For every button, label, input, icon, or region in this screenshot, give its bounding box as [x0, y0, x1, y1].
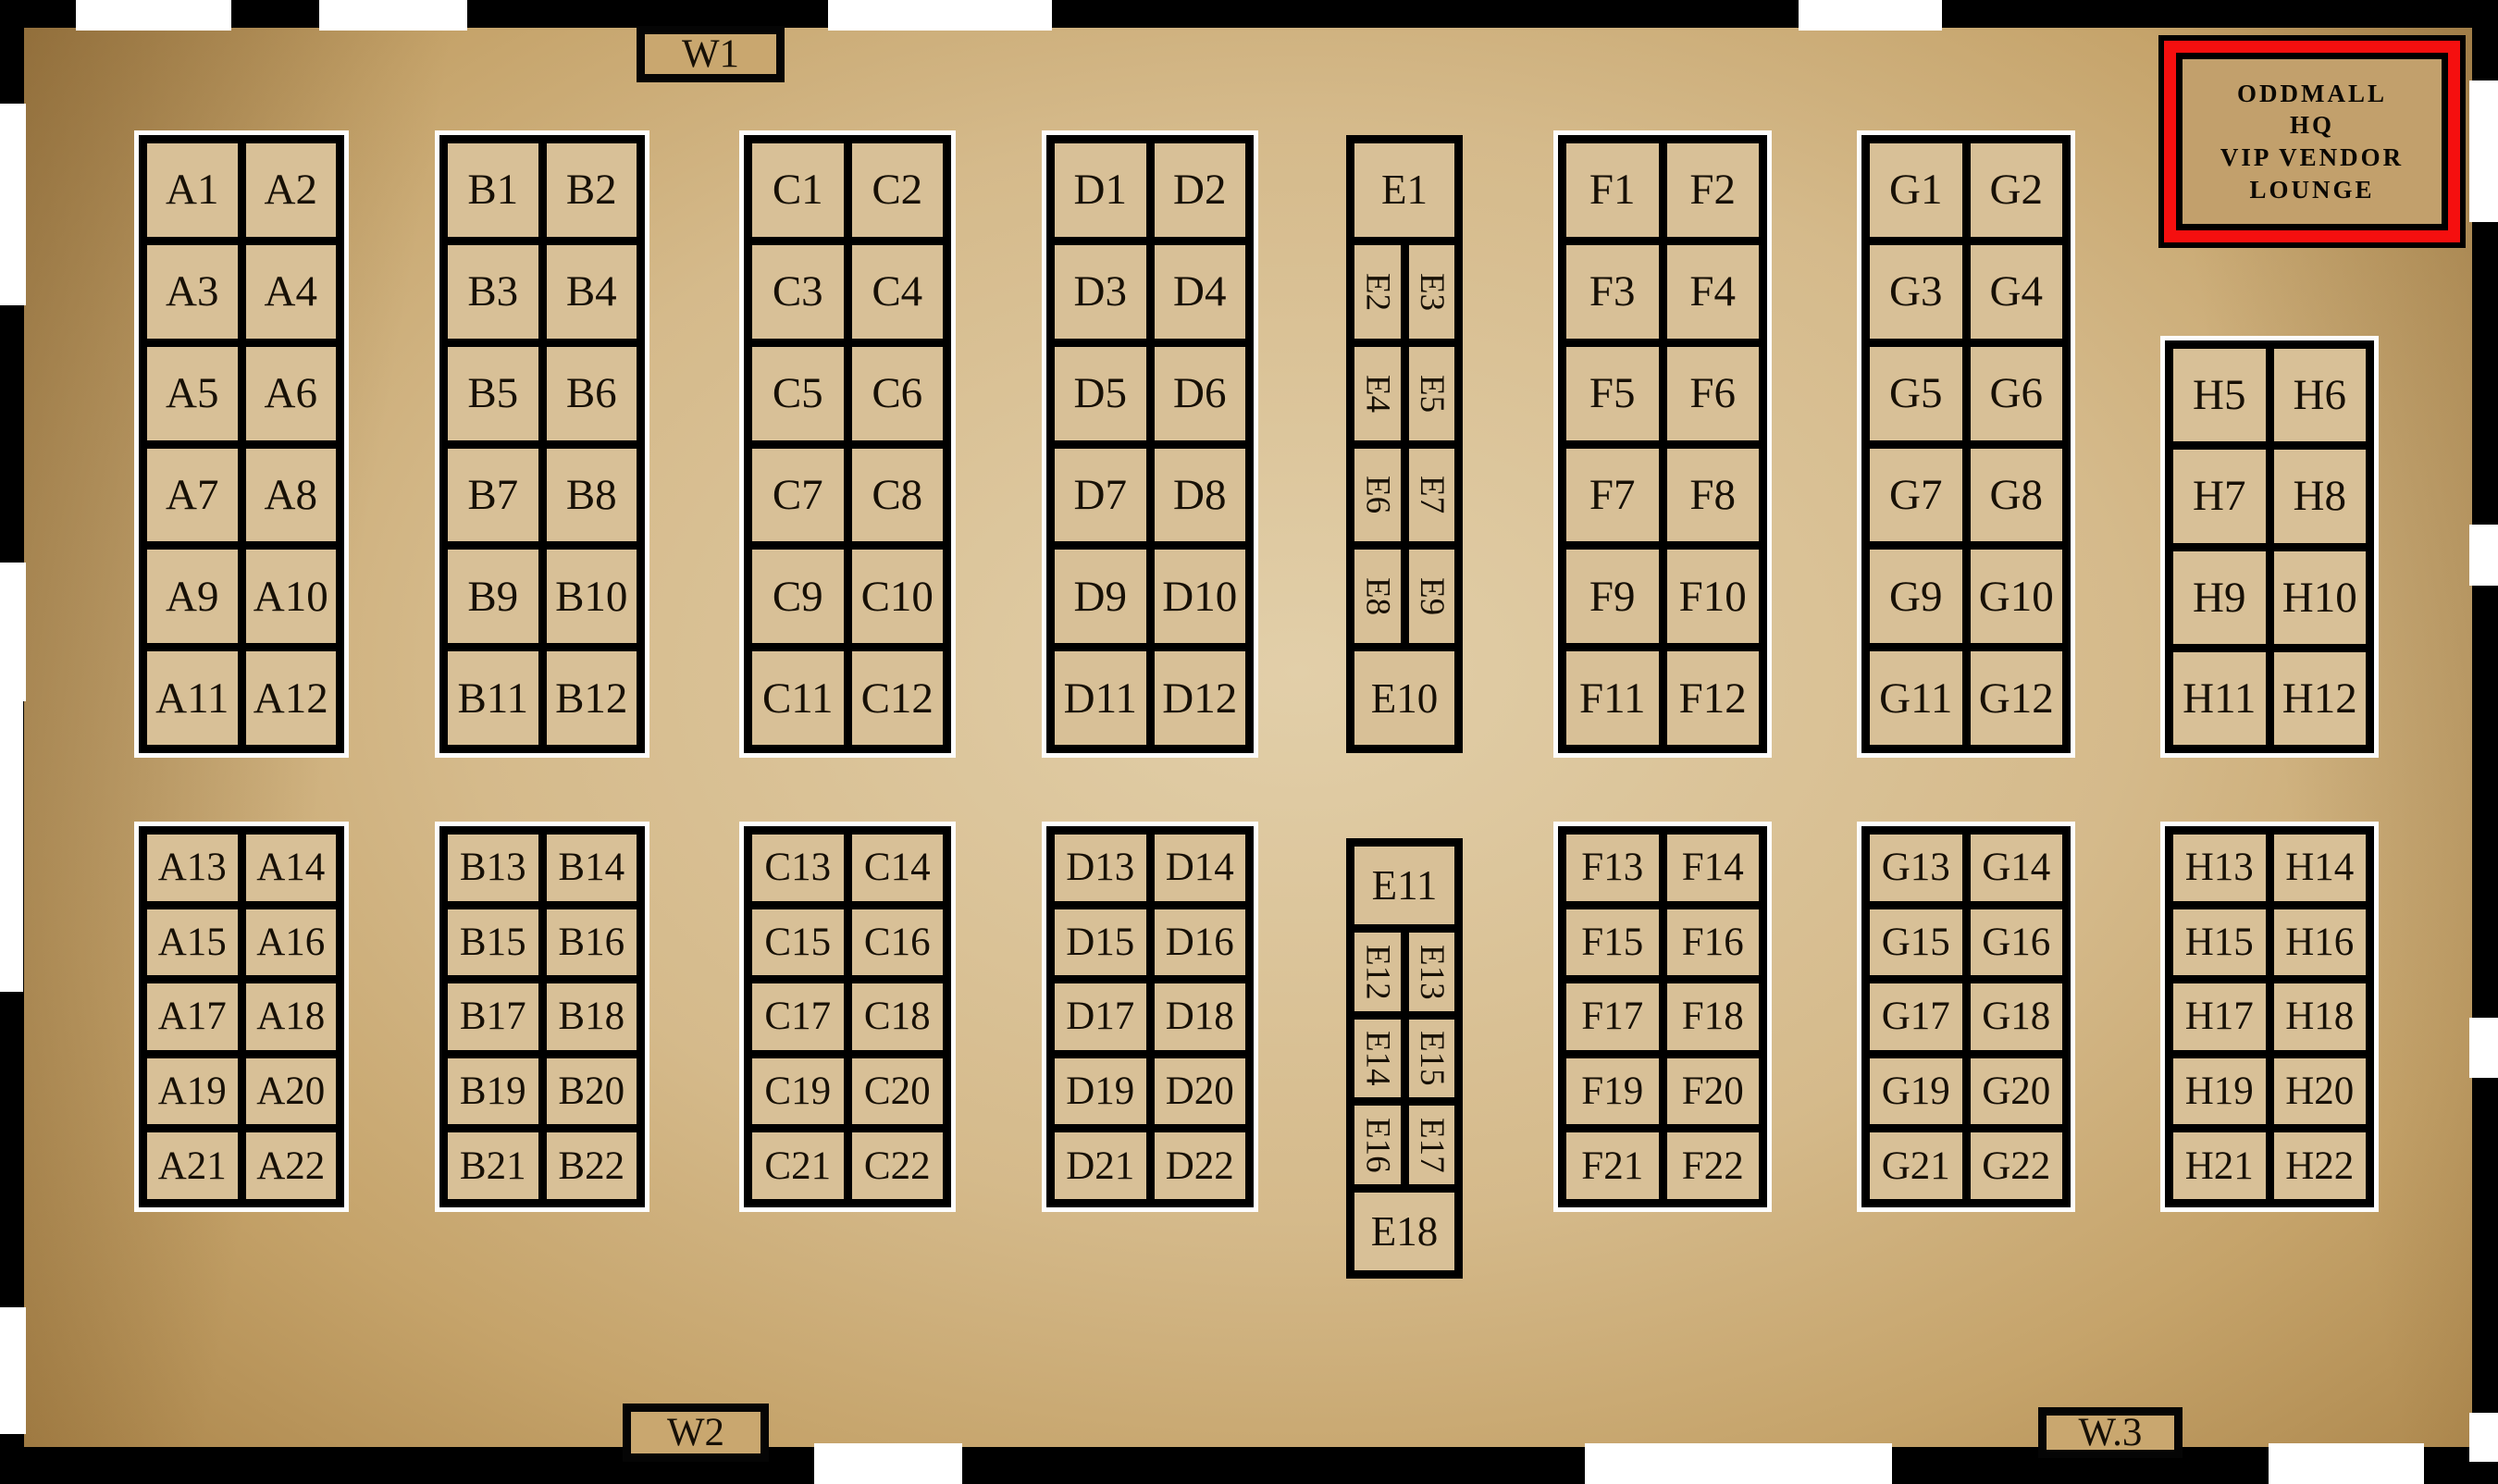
door-opening [0, 104, 26, 305]
booth-A17: A17 [147, 983, 238, 1050]
booth-E8: E8 [1354, 550, 1401, 643]
booth-A22: A22 [246, 1132, 337, 1199]
booth-H10: H10 [2274, 551, 2367, 644]
booth-D7: D7 [1055, 449, 1146, 542]
booth-H11: H11 [2173, 652, 2266, 745]
booth-G16: G16 [1971, 909, 2063, 976]
booth-G14: G14 [1971, 835, 2063, 901]
booth-C19: C19 [752, 1058, 844, 1125]
booth-C2: C2 [852, 143, 944, 237]
door-opening [76, 0, 231, 31]
booth-D13: D13 [1055, 835, 1146, 901]
door-opening [0, 1307, 26, 1434]
booth-D8: D8 [1155, 449, 1246, 542]
booth-B11: B11 [448, 651, 538, 745]
booth-B2: B2 [547, 143, 637, 237]
booth-E4: E4 [1354, 347, 1401, 440]
door-opening [2469, 525, 2498, 586]
wall-right [2472, 0, 2498, 1484]
booth-G20: G20 [1971, 1058, 2063, 1125]
booth-D14: D14 [1155, 835, 1246, 901]
booth-A8: A8 [246, 449, 337, 542]
booth-H13: H13 [2173, 835, 2266, 901]
booth-D18: D18 [1155, 983, 1246, 1050]
wall-marker-w1: W1 [637, 26, 785, 82]
booth-A5: A5 [147, 347, 238, 440]
booth-F9: F9 [1566, 550, 1659, 643]
booth-B6: B6 [547, 347, 637, 440]
booth-A4: A4 [246, 245, 337, 339]
booth-E14: E14 [1354, 1020, 1401, 1097]
booth-A7: A7 [147, 449, 238, 542]
booth-B19: B19 [448, 1058, 538, 1125]
booth-D6: D6 [1155, 347, 1246, 440]
booth-block-E-bottom: E11E12E13E14E15E16E17E18 [1346, 838, 1463, 1279]
booth-C5: C5 [752, 347, 844, 440]
booth-A16: A16 [246, 909, 337, 976]
booth-B16: B16 [547, 909, 637, 976]
booth-D10: D10 [1155, 550, 1246, 643]
booth-E9: E9 [1409, 550, 1455, 643]
booth-C16: C16 [852, 909, 944, 976]
vip-lounge-text-line: ODDMALL [2237, 78, 2387, 110]
booth-block-C-bottom: C13C14C15C16C17C18C19C20C21C22 [744, 826, 951, 1207]
booth-E6: E6 [1354, 449, 1401, 542]
booth-A19: A19 [147, 1058, 238, 1125]
booth-A1: A1 [147, 143, 238, 237]
booth-block-H-bottom: H13H14H15H16H17H18H19H20H21H22 [2165, 826, 2374, 1207]
booth-B17: B17 [448, 983, 538, 1050]
booth-A20: A20 [246, 1058, 337, 1125]
booth-B18: B18 [547, 983, 637, 1050]
booth-G8: G8 [1971, 449, 2063, 542]
booth-D15: D15 [1055, 909, 1146, 976]
booth-block-F-bottom: F13F14F15F16F17F18F19F20F21F22 [1558, 826, 1767, 1207]
booth-H20: H20 [2274, 1058, 2367, 1125]
booth-E11: E11 [1354, 847, 1454, 924]
booth-G1: G1 [1870, 143, 1962, 237]
booth-C22: C22 [852, 1132, 944, 1199]
booth-C7: C7 [752, 449, 844, 542]
booth-H5: H5 [2173, 349, 2266, 441]
booth-C10: C10 [852, 550, 944, 643]
booth-D5: D5 [1055, 347, 1146, 440]
booth-D22: D22 [1155, 1132, 1246, 1199]
booth-B7: B7 [448, 449, 538, 542]
door-opening [814, 1443, 962, 1484]
booth-G5: G5 [1870, 347, 1962, 440]
booth-H15: H15 [2173, 909, 2266, 976]
vip-lounge-text-line: LOUNGE [2249, 174, 2374, 206]
booth-D16: D16 [1155, 909, 1246, 976]
vip-vendor-lounge-inner: ODDMALL HQ VIP VENDOR LOUNGE [2176, 53, 2448, 230]
booth-A21: A21 [147, 1132, 238, 1199]
booth-B13: B13 [448, 835, 538, 901]
booth-block-H-top: H5H6H7H8H9H10H11H12 [2165, 340, 2374, 753]
booth-C9: C9 [752, 550, 844, 643]
booth-C1: C1 [752, 143, 844, 237]
booth-D12: D12 [1155, 651, 1246, 745]
booth-C18: C18 [852, 983, 944, 1050]
door-opening [0, 563, 26, 701]
booth-F14: F14 [1667, 835, 1760, 901]
booth-B20: B20 [547, 1058, 637, 1125]
vip-lounge-text-line: HQ [2290, 109, 2334, 142]
booth-F8: F8 [1667, 449, 1760, 542]
booth-E12: E12 [1354, 933, 1401, 1010]
booth-D11: D11 [1055, 651, 1146, 745]
booth-G18: G18 [1971, 983, 2063, 1050]
booth-E18: E18 [1354, 1193, 1454, 1270]
booth-block-C-top: C1C2C3C4C5C6C7C8C9C10C11C12 [744, 135, 951, 753]
booth-H9: H9 [2173, 551, 2266, 644]
booth-C4: C4 [852, 245, 944, 339]
booth-F21: F21 [1566, 1132, 1659, 1199]
wall-marker-w3: W.3 [2038, 1407, 2183, 1458]
booth-block-B-bottom: B13B14B15B16B17B18B19B20B21B22 [439, 826, 645, 1207]
wall-marker-label: W1 [682, 31, 739, 77]
booth-H7: H7 [2173, 450, 2266, 542]
booth-A2: A2 [246, 143, 337, 237]
booth-F5: F5 [1566, 347, 1659, 440]
booth-B1: B1 [448, 143, 538, 237]
booth-F4: F4 [1667, 245, 1760, 339]
booth-block-G-top: G1G2G3G4G5G6G7G8G9G10G11G12 [1861, 135, 2071, 753]
booth-block-G-bottom: G13G14G15G16G17G18G19G20G21G22 [1861, 826, 2071, 1207]
door-opening [828, 0, 1052, 31]
booth-G4: G4 [1971, 245, 2063, 339]
booth-block-D-bottom: D13D14D15D16D17D18D19D20D21D22 [1046, 826, 1254, 1207]
booth-E7: E7 [1409, 449, 1455, 542]
booth-E16: E16 [1354, 1106, 1401, 1183]
booth-G17: G17 [1870, 983, 1962, 1050]
booth-block-D-top: D1D2D3D4D5D6D7D8D9D10D11D12 [1046, 135, 1254, 753]
door-opening [2469, 1413, 2498, 1462]
vendor-floor-map: A1A2A3A4A5A6A7A8A9A10A11A12B1B2B3B4B5B6B… [0, 0, 2498, 1484]
vip-lounge-text-line: VIP VENDOR [2220, 142, 2404, 174]
booth-H12: H12 [2274, 652, 2367, 745]
wall-marker-w2: W2 [623, 1404, 769, 1462]
booth-A10: A10 [246, 550, 337, 643]
door-opening [2469, 80, 2498, 222]
booth-block-E-top: E1E2E3E4E5E6E7E8E9E10 [1346, 135, 1463, 753]
booth-B21: B21 [448, 1132, 538, 1199]
booth-F15: F15 [1566, 909, 1659, 976]
wall-marker-label: W2 [667, 1410, 724, 1455]
booth-A3: A3 [147, 245, 238, 339]
booth-block-A-bottom: A13A14A15A16A17A18A19A20A21A22 [139, 826, 344, 1207]
booth-A6: A6 [246, 347, 337, 440]
booth-D1: D1 [1055, 143, 1146, 237]
booth-block-A-top: A1A2A3A4A5A6A7A8A9A10A11A12 [139, 135, 344, 753]
booth-D3: D3 [1055, 245, 1146, 339]
booth-C6: C6 [852, 347, 944, 440]
booth-F1: F1 [1566, 143, 1659, 237]
booth-H19: H19 [2173, 1058, 2266, 1125]
booth-E17: E17 [1409, 1106, 1455, 1183]
vip-vendor-lounge-box: ODDMALL HQ VIP VENDOR LOUNGE [2158, 35, 2466, 248]
booth-D17: D17 [1055, 983, 1146, 1050]
door-opening [2269, 1443, 2424, 1484]
booth-A11: A11 [147, 651, 238, 745]
booth-G19: G19 [1870, 1058, 1962, 1125]
door-opening [319, 0, 467, 31]
booth-C14: C14 [852, 835, 944, 901]
booth-G7: G7 [1870, 449, 1962, 542]
booth-A12: A12 [246, 651, 337, 745]
booth-D9: D9 [1055, 550, 1146, 643]
booth-F20: F20 [1667, 1058, 1760, 1125]
booth-F22: F22 [1667, 1132, 1760, 1199]
booth-block-F-top: F1F2F3F4F5F6F7F8F9F10F11F12 [1558, 135, 1767, 753]
booth-H21: H21 [2173, 1132, 2266, 1199]
booth-block-B-top: B1B2B3B4B5B6B7B8B9B10B11B12 [439, 135, 645, 753]
door-opening [2469, 1018, 2498, 1078]
door-opening [0, 701, 23, 992]
booth-E10: E10 [1354, 651, 1454, 745]
booth-F10: F10 [1667, 550, 1760, 643]
booth-B14: B14 [547, 835, 637, 901]
booth-E15: E15 [1409, 1020, 1455, 1097]
booth-E5: E5 [1409, 347, 1455, 440]
booth-B12: B12 [547, 651, 637, 745]
booth-B4: B4 [547, 245, 637, 339]
door-opening [1799, 0, 1942, 31]
booth-G15: G15 [1870, 909, 1962, 976]
booth-C13: C13 [752, 835, 844, 901]
booth-D4: D4 [1155, 245, 1246, 339]
booth-B9: B9 [448, 550, 538, 643]
booth-G22: G22 [1971, 1132, 2063, 1199]
booth-F13: F13 [1566, 835, 1659, 901]
booth-A14: A14 [246, 835, 337, 901]
booth-A15: A15 [147, 909, 238, 976]
booth-C3: C3 [752, 245, 844, 339]
booth-B5: B5 [448, 347, 538, 440]
booth-E13: E13 [1409, 933, 1455, 1010]
booth-A13: A13 [147, 835, 238, 901]
booth-G9: G9 [1870, 550, 1962, 643]
booth-F17: F17 [1566, 983, 1659, 1050]
booth-F6: F6 [1667, 347, 1760, 440]
booth-E3: E3 [1409, 245, 1455, 339]
booth-C11: C11 [752, 651, 844, 745]
booth-H14: H14 [2274, 835, 2367, 901]
booth-B3: B3 [448, 245, 538, 339]
booth-G2: G2 [1971, 143, 2063, 237]
booth-H22: H22 [2274, 1132, 2367, 1199]
booth-B10: B10 [547, 550, 637, 643]
booth-G12: G12 [1971, 651, 2063, 745]
booth-E2: E2 [1354, 245, 1401, 339]
booth-B8: B8 [547, 449, 637, 542]
booth-B15: B15 [448, 909, 538, 976]
booth-C15: C15 [752, 909, 844, 976]
wall-marker-label: W.3 [2079, 1410, 2143, 1455]
booth-D2: D2 [1155, 143, 1246, 237]
booth-C17: C17 [752, 983, 844, 1050]
booth-A9: A9 [147, 550, 238, 643]
booth-C8: C8 [852, 449, 944, 542]
booth-F11: F11 [1566, 651, 1659, 745]
booth-F2: F2 [1667, 143, 1760, 237]
booth-G6: G6 [1971, 347, 2063, 440]
booth-G3: G3 [1870, 245, 1962, 339]
booth-G10: G10 [1971, 550, 2063, 643]
booth-F12: F12 [1667, 651, 1760, 745]
booth-G11: G11 [1870, 651, 1962, 745]
booth-F7: F7 [1566, 449, 1659, 542]
booth-D19: D19 [1055, 1058, 1146, 1125]
booth-F3: F3 [1566, 245, 1659, 339]
booth-D20: D20 [1155, 1058, 1246, 1125]
booth-C21: C21 [752, 1132, 844, 1199]
booth-A18: A18 [246, 983, 337, 1050]
booth-G13: G13 [1870, 835, 1962, 901]
booth-G21: G21 [1870, 1132, 1962, 1199]
booth-H17: H17 [2173, 983, 2266, 1050]
booth-H16: H16 [2274, 909, 2367, 976]
booth-H18: H18 [2274, 983, 2367, 1050]
booth-F18: F18 [1667, 983, 1760, 1050]
booth-E1: E1 [1354, 143, 1454, 237]
booth-C12: C12 [852, 651, 944, 745]
booth-H6: H6 [2274, 349, 2367, 441]
booth-H8: H8 [2274, 450, 2367, 542]
booth-D21: D21 [1055, 1132, 1146, 1199]
booth-C20: C20 [852, 1058, 944, 1125]
door-opening [1585, 1443, 1892, 1484]
booth-F19: F19 [1566, 1058, 1659, 1125]
booth-F16: F16 [1667, 909, 1760, 976]
booth-B22: B22 [547, 1132, 637, 1199]
